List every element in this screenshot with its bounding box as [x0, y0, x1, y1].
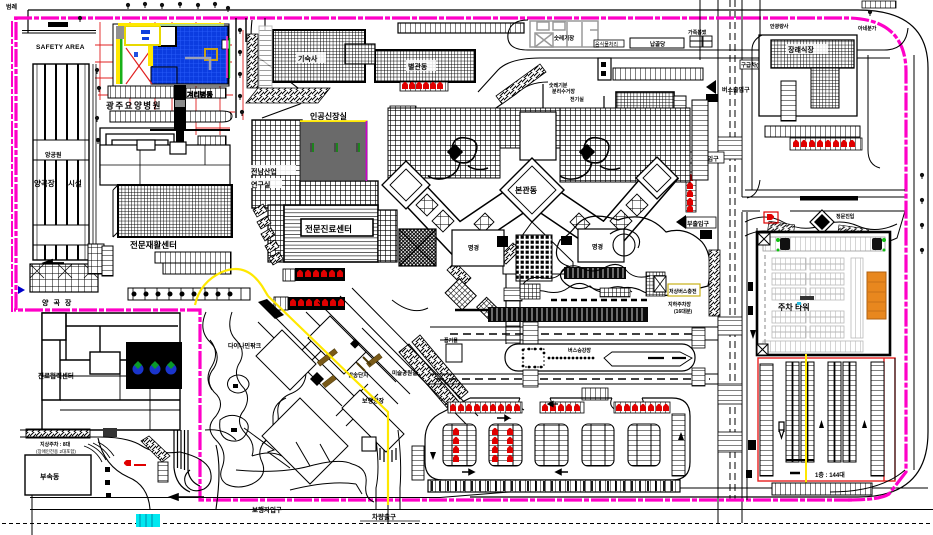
svg-text:폼기물: 폼기물 — [444, 337, 458, 344]
svg-text:납골당: 납골당 — [650, 40, 665, 48]
svg-text:전남산업: 전남산업 — [251, 167, 277, 176]
svg-text:안광량사: 안광량사 — [770, 23, 789, 30]
svg-text:저상버스충전: 저상버스충전 — [669, 288, 697, 295]
svg-text:전문진료센터: 전문진료센터 — [305, 224, 352, 234]
svg-text:아네분가: 아네분가 — [858, 25, 877, 32]
svg-text:연구실: 연구실 — [251, 180, 270, 189]
svg-text:범례: 범례 — [6, 3, 18, 11]
svg-text:가족봅앴: 가족봅앴 — [688, 29, 707, 36]
svg-text:다이나민팎크: 다이나민팎크 — [228, 342, 262, 350]
svg-text:기숙사: 기숙사 — [298, 54, 318, 63]
svg-text:(장애인전용 2대포함): (장애인전용 2대포함) — [36, 448, 76, 455]
svg-text:본관동: 본관동 — [515, 185, 538, 195]
svg-text:음식물처리: 음식물처리 — [595, 41, 618, 48]
svg-text:보행자입구: 보행자입구 — [252, 505, 282, 514]
svg-text:전문재활센터: 전문재활센터 — [130, 240, 177, 250]
svg-text:숫레기분: 숫레기분 — [549, 82, 568, 89]
svg-text:SAFETY AREA: SAFETY AREA — [36, 44, 85, 51]
svg-text:부속동: 부속동 — [40, 472, 60, 481]
svg-text:버스출입구: 버스출입구 — [722, 86, 750, 94]
svg-text:1층 : 144대: 1층 : 144대 — [815, 471, 845, 479]
svg-text:분리수거장: 분리수거장 — [552, 88, 575, 95]
svg-text:지하주차장: 지하주차장 — [668, 301, 691, 308]
svg-text:양곡장: 양곡장 — [42, 298, 76, 307]
svg-text:전기실: 전기실 — [570, 96, 584, 103]
svg-text:인공신장실: 인공신장실 — [310, 111, 347, 121]
svg-text:버스승강장: 버스승강장 — [568, 347, 591, 354]
svg-text:장럐식장: 장럐식장 — [788, 45, 814, 54]
svg-text:차량출구: 차량출구 — [372, 512, 396, 521]
svg-text:양곡장: 양곡장 — [34, 178, 55, 188]
svg-text:명경: 명경 — [592, 243, 603, 251]
svg-text:주차 타워: 주차 타워 — [778, 302, 810, 312]
svg-text:명경: 명경 — [468, 244, 479, 252]
svg-text:시설: 시설 — [68, 178, 82, 188]
svg-text:정문진입: 정문진입 — [836, 213, 855, 220]
svg-text:(16대분): (16대분) — [674, 308, 692, 315]
svg-text:겨리병동: 겨리병동 — [187, 90, 213, 99]
svg-text:숫레기장: 숫레기장 — [554, 34, 574, 42]
svg-text:야외공원: 야외공원 — [133, 376, 152, 383]
svg-text:진료협력센터: 진료협력센터 — [38, 371, 74, 380]
svg-text:부출입구: 부출입구 — [687, 220, 710, 228]
svg-text:앙공원: 앙공원 — [45, 151, 62, 159]
svg-text:광주요양병원: 광주요양병원 — [106, 101, 162, 111]
svg-text:지상주차 : 8대: 지상주차 : 8대 — [40, 441, 71, 448]
svg-text:별관동: 별관동 — [408, 62, 428, 71]
